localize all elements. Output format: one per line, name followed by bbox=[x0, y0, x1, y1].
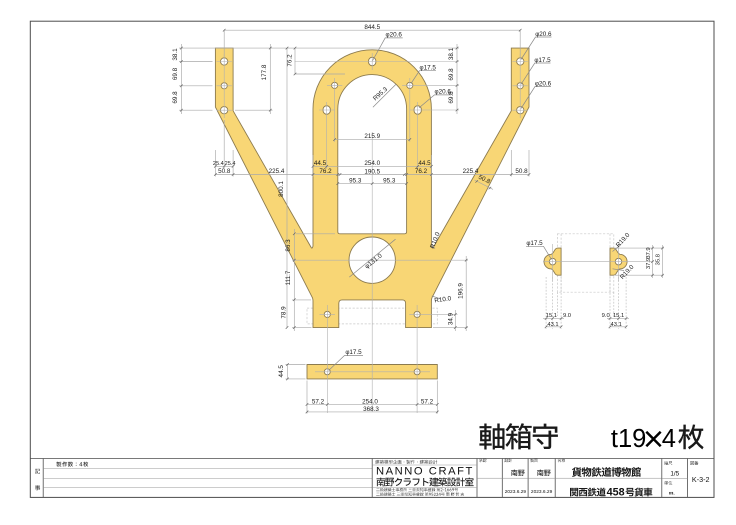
svg-text:190.5: 190.5 bbox=[364, 169, 380, 176]
svg-text:76.2: 76.2 bbox=[415, 168, 428, 175]
svg-text:9.0: 9.0 bbox=[563, 313, 571, 319]
svg-text:368.3: 368.3 bbox=[363, 406, 379, 413]
svg-text:NANNO CRAFT: NANNO CRAFT bbox=[376, 465, 474, 477]
svg-text:69.8: 69.8 bbox=[448, 68, 455, 81]
svg-text:t19: t19 bbox=[611, 425, 646, 453]
svg-text:225.4: 225.4 bbox=[269, 168, 285, 175]
svg-text:57.2: 57.2 bbox=[312, 398, 325, 405]
svg-text:196.9: 196.9 bbox=[458, 283, 465, 299]
svg-text:76.2: 76.2 bbox=[287, 54, 294, 67]
svg-text:43.1: 43.1 bbox=[547, 322, 558, 328]
svg-text:800.1: 800.1 bbox=[278, 181, 285, 197]
svg-text:78.9: 78.9 bbox=[281, 306, 288, 319]
svg-text:95.3: 95.3 bbox=[383, 177, 396, 184]
svg-text:44.5: 44.5 bbox=[278, 365, 285, 378]
svg-text:φ17.5: φ17.5 bbox=[526, 240, 543, 247]
svg-text:69.8: 69.8 bbox=[172, 67, 179, 80]
svg-text:254.0: 254.0 bbox=[364, 160, 380, 167]
svg-text:φ17.5: φ17.5 bbox=[534, 57, 551, 64]
svg-text:225.4: 225.4 bbox=[463, 168, 479, 175]
svg-text:86.3: 86.3 bbox=[285, 239, 292, 252]
svg-text:177.8: 177.8 bbox=[261, 64, 268, 80]
svg-text:9.0: 9.0 bbox=[602, 313, 610, 319]
svg-text:2023.6.29: 2023.6.29 bbox=[531, 489, 553, 495]
svg-text:φ17.5: φ17.5 bbox=[345, 349, 362, 356]
svg-text:111.7: 111.7 bbox=[285, 270, 292, 285]
svg-text:2023.6.29: 2023.6.29 bbox=[505, 489, 527, 495]
svg-text:34.9: 34.9 bbox=[447, 312, 454, 325]
svg-text:69.8: 69.8 bbox=[172, 91, 179, 104]
svg-text:254.0: 254.0 bbox=[362, 398, 378, 405]
svg-text:37.9: 37.9 bbox=[646, 247, 652, 258]
svg-text:φ20.6: φ20.6 bbox=[535, 80, 552, 87]
svg-text:φ20.6: φ20.6 bbox=[386, 32, 403, 39]
svg-text:φ20.6: φ20.6 bbox=[435, 89, 452, 96]
svg-text:15.1: 15.1 bbox=[546, 313, 557, 319]
svg-text:458: 458 bbox=[607, 487, 625, 499]
svg-text:76.2: 76.2 bbox=[319, 168, 332, 175]
svg-text:1/5: 1/5 bbox=[670, 471, 679, 478]
svg-text:50.8: 50.8 bbox=[218, 168, 231, 175]
svg-text:K-3-2: K-3-2 bbox=[692, 475, 710, 484]
svg-text:57.2: 57.2 bbox=[421, 398, 434, 405]
svg-text:4: 4 bbox=[662, 425, 676, 453]
svg-text:44.5: 44.5 bbox=[314, 160, 327, 167]
svg-text:215.9: 215.9 bbox=[364, 133, 380, 140]
svg-text:38.1: 38.1 bbox=[448, 47, 455, 60]
svg-text:φ20.6: φ20.6 bbox=[535, 31, 552, 38]
svg-text:44.5: 44.5 bbox=[418, 160, 431, 167]
svg-text:43.1: 43.1 bbox=[611, 322, 622, 328]
svg-text:15.1: 15.1 bbox=[613, 313, 624, 319]
svg-text:95.3: 95.3 bbox=[349, 177, 362, 184]
svg-text:φ17.5: φ17.5 bbox=[420, 65, 437, 72]
svg-text:844.5: 844.5 bbox=[364, 24, 380, 31]
svg-text:37.9: 37.9 bbox=[646, 258, 652, 269]
svg-text:50.8: 50.8 bbox=[515, 168, 528, 175]
svg-text:38.1: 38.1 bbox=[172, 48, 179, 61]
svg-text:35.8: 35.8 bbox=[656, 254, 662, 265]
svg-text:25.4: 25.4 bbox=[225, 161, 236, 167]
svg-text:25.4: 25.4 bbox=[213, 161, 224, 167]
